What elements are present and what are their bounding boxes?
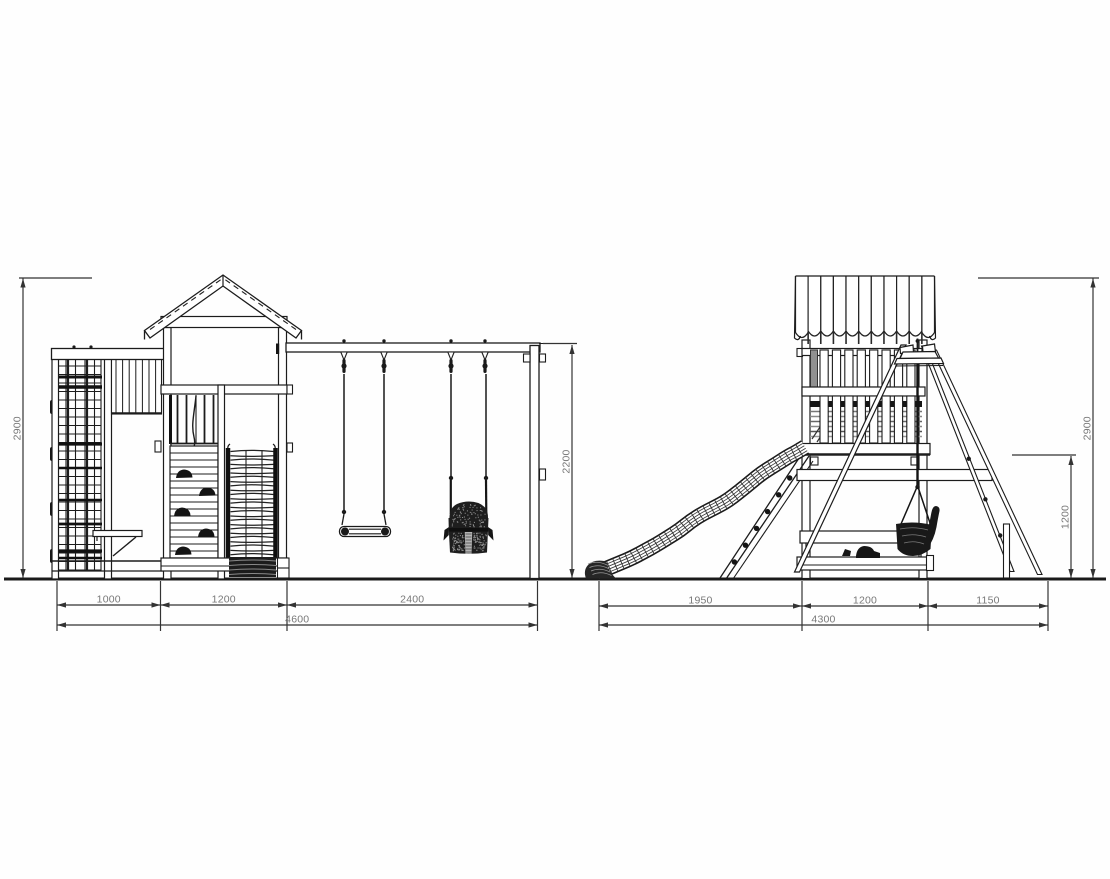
svg-text:1200: 1200 bbox=[212, 594, 236, 606]
svg-text:4300: 4300 bbox=[811, 614, 835, 626]
svg-text:1200: 1200 bbox=[1060, 505, 1072, 529]
svg-text:1150: 1150 bbox=[976, 595, 999, 607]
svg-text:2400: 2400 bbox=[400, 594, 424, 606]
svg-text:2900: 2900 bbox=[1082, 416, 1094, 440]
svg-text:1950: 1950 bbox=[688, 595, 712, 607]
svg-text:1200: 1200 bbox=[853, 595, 877, 607]
svg-text:2200: 2200 bbox=[561, 449, 573, 473]
svg-text:2900: 2900 bbox=[12, 416, 24, 440]
svg-text:1000: 1000 bbox=[97, 594, 121, 606]
svg-text:4600: 4600 bbox=[285, 614, 309, 626]
